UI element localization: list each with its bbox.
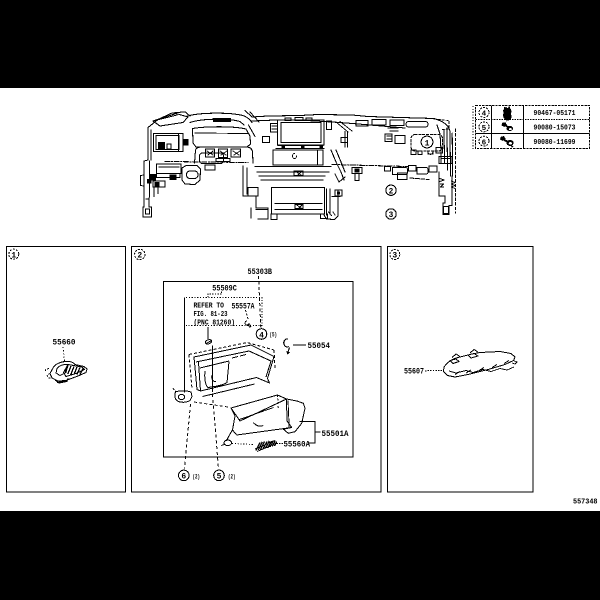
svg-text:1: 1 [11, 251, 16, 260]
svg-text:2: 2 [137, 252, 142, 261]
svg-text:FIG. 81-23: FIG. 81-23 [194, 311, 228, 319]
svg-text:55607: 55607 [404, 367, 424, 377]
svg-text:REFER TO: REFER TO [194, 302, 225, 310]
svg-text:55560A: 55560A [284, 439, 311, 449]
svg-text:(2): (2) [228, 473, 236, 480]
svg-text:(2): (2) [193, 473, 201, 480]
svg-text:55303B: 55303B [248, 267, 273, 277]
svg-text:1: 1 [425, 139, 430, 148]
svg-text:(PNC 81260): (PNC 81260) [194, 319, 236, 327]
svg-text:4: 4 [482, 111, 487, 119]
svg-text:55509C: 55509C [212, 283, 237, 293]
svg-text:90080-11699: 90080-11699 [534, 139, 576, 147]
svg-text:2: 2 [389, 188, 394, 196]
svg-text:6: 6 [482, 139, 487, 147]
svg-text:90467-05171: 90467-05171 [534, 110, 576, 118]
svg-text:3: 3 [392, 252, 397, 261]
svg-text:4: 4 [259, 331, 264, 340]
svg-text:3: 3 [389, 212, 394, 220]
svg-text:5: 5 [482, 125, 487, 133]
svg-text:55054: 55054 [308, 341, 331, 351]
svg-text:55557A: 55557A [232, 301, 256, 311]
svg-text:557348: 557348 [573, 499, 598, 507]
svg-text:5: 5 [217, 473, 222, 482]
svg-text:55501A: 55501A [322, 429, 350, 439]
svg-text:55660: 55660 [53, 337, 76, 347]
svg-text:90080-15073: 90080-15073 [534, 125, 576, 133]
svg-text:6: 6 [181, 473, 186, 482]
svg-text:(5): (5) [270, 331, 278, 338]
